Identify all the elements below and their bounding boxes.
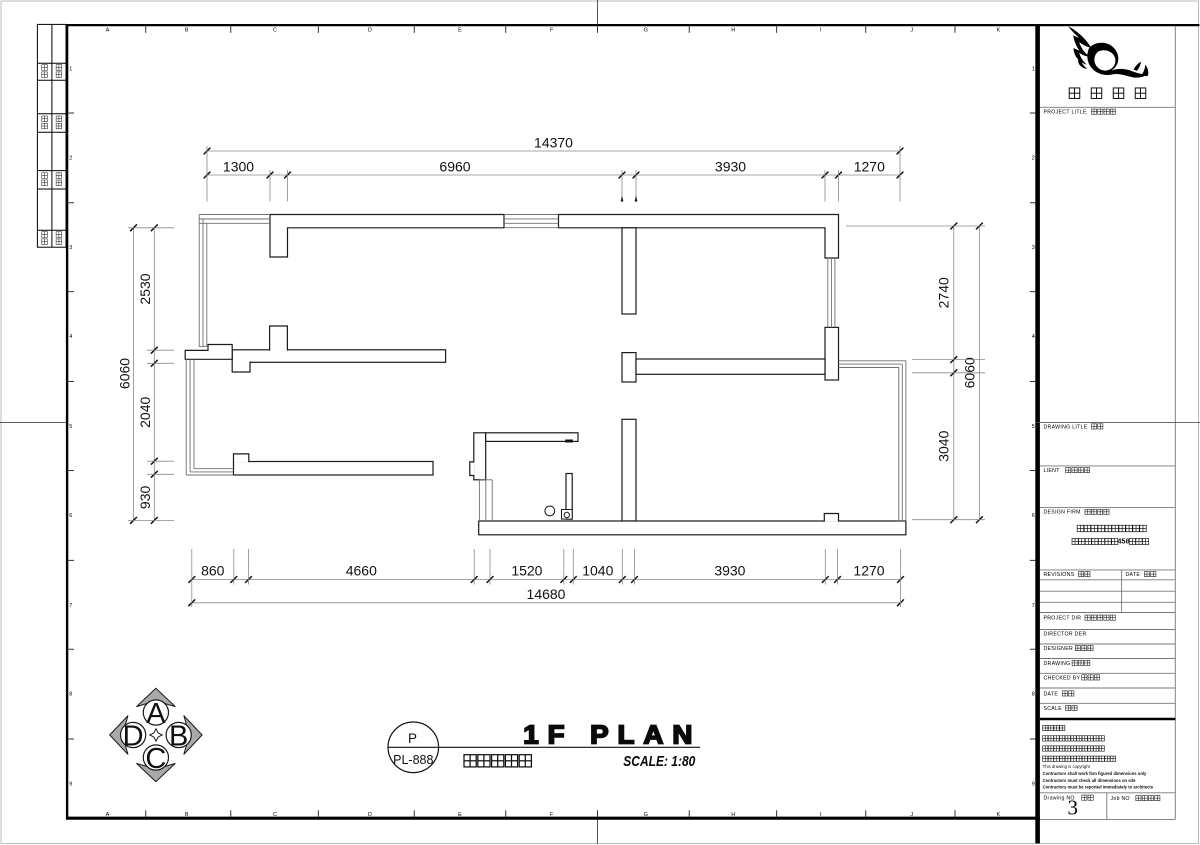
svg-text:2: 2	[1032, 155, 1035, 161]
svg-text:8: 8	[69, 692, 72, 698]
svg-text:2740: 2740	[936, 277, 952, 308]
svg-text:C: C	[273, 812, 277, 818]
svg-text:3930: 3930	[714, 563, 745, 579]
svg-text:1270: 1270	[853, 563, 884, 579]
svg-text:5: 5	[69, 424, 72, 430]
svg-text:PROJECT LITLE: PROJECT LITLE	[1044, 110, 1088, 116]
svg-text:A: A	[106, 812, 110, 818]
svg-text:DIRECTOR DER: DIRECTOR DER	[1044, 632, 1087, 638]
svg-text:D: D	[368, 812, 372, 818]
svg-text:9: 9	[69, 782, 72, 788]
svg-text:6960: 6960	[439, 158, 470, 174]
svg-text:PL-888: PL-888	[393, 753, 433, 767]
svg-text:J: J	[910, 812, 913, 818]
svg-text:Contractors shall work fom fig: Contractors shall work fom figured dimen…	[1043, 771, 1147, 776]
svg-text:6060: 6060	[117, 358, 133, 389]
svg-text:C: C	[145, 743, 166, 775]
svg-text:B: B	[185, 812, 189, 818]
svg-text:LIENT: LIENT	[1044, 468, 1061, 474]
svg-text:G: G	[644, 812, 648, 818]
svg-text:1520: 1520	[511, 563, 542, 579]
svg-text:CHECKED BY: CHECKED BY	[1044, 675, 1081, 681]
svg-text:1F PLAN: 1F PLAN	[523, 721, 701, 749]
svg-text:3: 3	[1032, 245, 1035, 251]
svg-text:DRAWING: DRAWING	[1044, 661, 1071, 667]
svg-text:14370: 14370	[534, 134, 573, 150]
svg-text:14680: 14680	[527, 586, 566, 602]
svg-text:2040: 2040	[137, 397, 153, 428]
svg-text:1040: 1040	[582, 563, 613, 579]
svg-text:3: 3	[1067, 796, 1078, 820]
svg-text:458: 458	[1117, 537, 1130, 546]
svg-text:DESIGNER: DESIGNER	[1044, 646, 1074, 652]
svg-text:4660: 4660	[346, 563, 377, 579]
svg-text:1270: 1270	[854, 158, 885, 174]
svg-text:5: 5	[1032, 424, 1035, 430]
svg-text:1300: 1300	[223, 158, 254, 174]
svg-text:DESIGN FIRM: DESIGN FIRM	[1044, 510, 1081, 516]
svg-text:7: 7	[1032, 603, 1035, 609]
svg-text:E: E	[458, 812, 462, 818]
svg-text:9: 9	[1032, 782, 1035, 788]
svg-text:3: 3	[69, 245, 72, 251]
svg-text:3930: 3930	[715, 158, 746, 174]
svg-text:C: C	[273, 28, 277, 34]
svg-text:SCALE: 1:80: SCALE: 1:80	[623, 753, 696, 770]
svg-text:E: E	[458, 28, 462, 34]
svg-text:3040: 3040	[936, 430, 952, 461]
svg-text:6: 6	[69, 513, 72, 519]
svg-text:PROJECT DIR: PROJECT DIR	[1044, 616, 1082, 622]
svg-text:6: 6	[1032, 513, 1035, 519]
svg-text:Contractors must check all dim: Contractors must check all dimensions on…	[1043, 778, 1137, 783]
svg-text:This drawing is copyright: This drawing is copyright	[1043, 764, 1091, 769]
svg-text:860: 860	[201, 563, 225, 579]
svg-text:K: K	[996, 812, 1000, 818]
svg-text:J: J	[910, 28, 913, 34]
svg-text:DRAWING LITLE: DRAWING LITLE	[1044, 424, 1088, 430]
svg-text:1: 1	[69, 67, 72, 73]
svg-text:K: K	[996, 28, 1000, 34]
svg-text:4: 4	[1032, 334, 1035, 340]
svg-text:930: 930	[137, 486, 153, 510]
svg-text:DATE: DATE	[1044, 691, 1059, 697]
svg-text:B: B	[185, 28, 189, 34]
svg-text:A: A	[106, 28, 110, 34]
svg-text:D: D	[368, 28, 372, 34]
svg-text:2530: 2530	[137, 273, 153, 304]
svg-text:7: 7	[69, 603, 72, 609]
svg-text:G: G	[644, 28, 648, 34]
svg-text:P: P	[408, 731, 417, 746]
svg-text:B: B	[169, 720, 188, 752]
svg-text:H: H	[731, 28, 735, 34]
svg-text:H: H	[731, 812, 735, 818]
svg-text:4: 4	[69, 334, 72, 340]
svg-text:REVISIONS: REVISIONS	[1044, 572, 1075, 578]
svg-text:2: 2	[69, 155, 72, 161]
svg-text:Job NO: Job NO	[1111, 796, 1130, 802]
svg-text:1: 1	[1032, 67, 1035, 73]
svg-text:8: 8	[1032, 692, 1035, 698]
svg-text:D: D	[123, 720, 144, 752]
svg-text:SCALE: SCALE	[1044, 706, 1063, 712]
svg-text:DATE: DATE	[1126, 572, 1141, 578]
svg-text:A: A	[146, 698, 166, 730]
svg-text:Contractors must be reported i: Contractors must be reported immediately…	[1043, 785, 1154, 790]
